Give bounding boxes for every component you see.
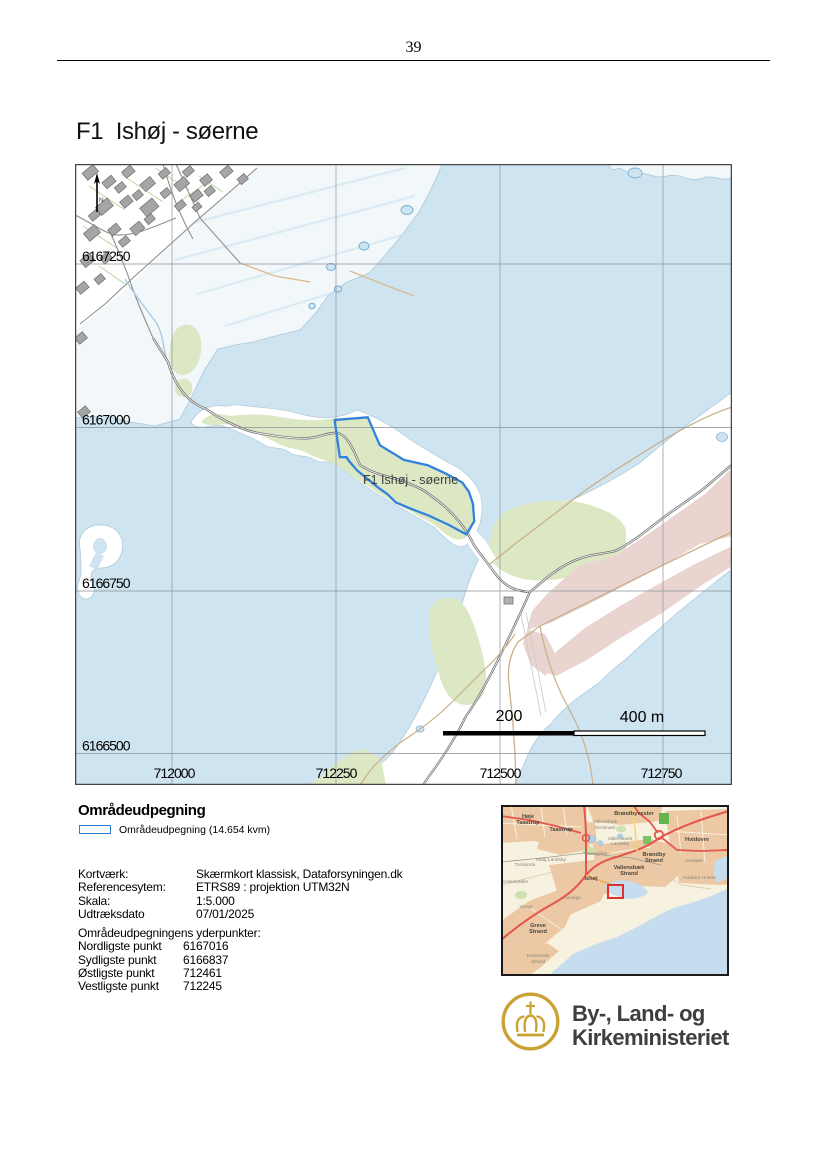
svg-text:Tranegilde: Tranegilde	[585, 851, 608, 857]
svg-text:Strand: Strand	[531, 959, 545, 965]
svg-text:Avedøre Holme: Avedøre Holme	[682, 875, 716, 881]
svg-text:6166500: 6166500	[82, 738, 131, 754]
svg-text:400 m: 400 m	[620, 709, 664, 726]
svg-text:Taastrup: Taastrup	[516, 820, 540, 826]
svg-text:Landsby: Landsby	[611, 841, 630, 847]
svg-text:712500: 712500	[480, 765, 522, 781]
svg-text:Vallensbæk: Vallensbæk	[593, 819, 618, 825]
svg-text:Torslunde: Torslunde	[515, 862, 536, 868]
svg-text:Nordmark: Nordmark	[594, 825, 616, 831]
svg-text:Hundige: Hundige	[563, 895, 581, 901]
svg-text:Strand: Strand	[645, 858, 663, 864]
svg-text:Taastrup: Taastrup	[549, 827, 573, 833]
svg-text:6167000: 6167000	[82, 412, 131, 428]
svg-text:Brøndbyvester: Brøndbyvester	[614, 811, 654, 817]
svg-text:Strand: Strand	[620, 871, 638, 877]
svg-text:Ishøj Landsby: Ishøj Landsby	[536, 857, 566, 863]
svg-text:Avedøre: Avedøre	[685, 858, 703, 864]
svg-text:6166750: 6166750	[82, 575, 131, 591]
svg-text:F1 Ishøj - søerne: F1 Ishøj - søerne	[363, 473, 458, 487]
svg-text:Krissebakke: Krissebakke	[502, 879, 528, 885]
svg-text:Ishøj: Ishøj	[584, 876, 597, 882]
svg-text:712750: 712750	[641, 765, 683, 781]
svg-text:Greve: Greve	[519, 904, 532, 910]
svg-text:Karlslunde: Karlslunde	[527, 953, 550, 959]
svg-text:712000: 712000	[154, 765, 196, 781]
svg-text:712250: 712250	[316, 765, 358, 781]
svg-text:6167250: 6167250	[82, 248, 131, 264]
svg-text:Strand: Strand	[529, 929, 547, 935]
svg-text:Hvidovre: Hvidovre	[685, 837, 709, 843]
svg-text:N: N	[99, 197, 104, 204]
svg-text:200: 200	[496, 708, 523, 725]
